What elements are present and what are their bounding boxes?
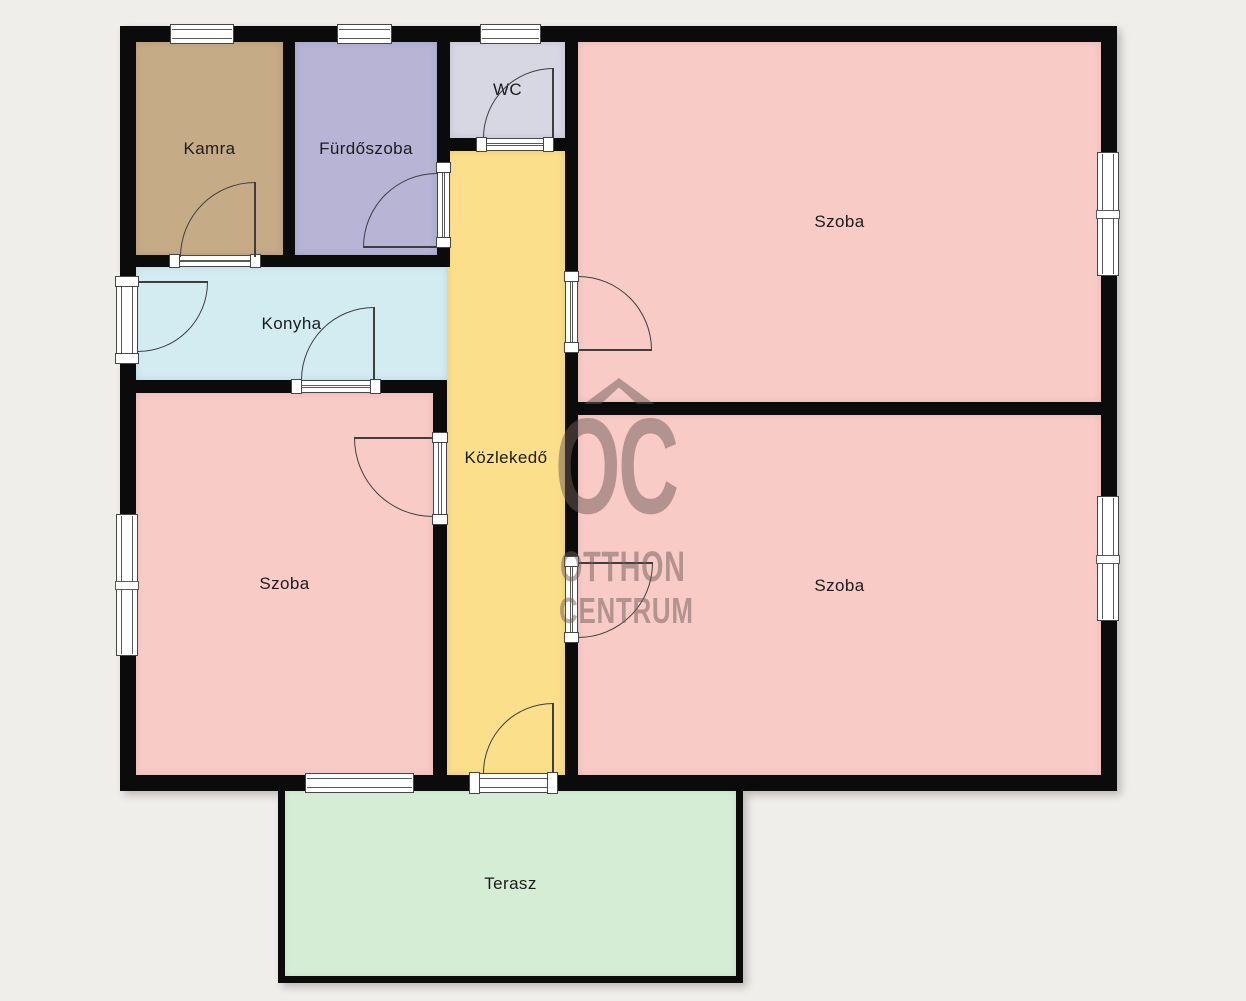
door-opening-szoba-br	[565, 557, 578, 642]
room-label-szoba-bottom-right: Szoba	[814, 576, 864, 596]
door-leaf-wc	[552, 68, 554, 138]
door-leaf-kamra	[254, 182, 256, 257]
wall-right-szoba-divider	[578, 402, 1117, 415]
door-leaf-szoba-bl	[354, 437, 433, 439]
door-opening-furdoszoba	[437, 163, 450, 247]
floor-plan: Kamra Fürdőszoba WC Szoba Konyha Közleke…	[0, 0, 1246, 1001]
wall-outer-top	[120, 26, 1117, 42]
door-opening-szoba-bl	[433, 433, 447, 524]
door-opening-konyha-entry	[116, 277, 138, 363]
window-kamra-top	[170, 24, 234, 44]
window-szoba-tr-right	[1097, 152, 1119, 276]
wall-outer-left	[120, 26, 136, 791]
wall-kamra-furdoszoba	[283, 42, 295, 255]
room-label-kozlekedo: Közlekedő	[465, 448, 548, 468]
wall-terasz-left	[278, 791, 285, 983]
room-szoba-bottom-right: Szoba	[578, 415, 1101, 775]
window-furdoszoba-top	[337, 24, 392, 44]
door-leaf-furdoszoba	[363, 246, 437, 248]
room-szoba-top-right: Szoba	[578, 42, 1101, 402]
wall-kozlekedo-right-rooms	[565, 42, 578, 775]
window-szoba-bl-terasz	[305, 773, 414, 793]
door-leaf-szoba-tr	[578, 349, 652, 351]
room-label-szoba-bottom-left: Szoba	[259, 574, 309, 594]
door-opening-terasz	[470, 773, 557, 793]
door-leaf-szoba-br	[578, 562, 653, 564]
room-label-konyha: Konyha	[261, 314, 321, 334]
door-opening-konyha-szoba	[292, 380, 380, 393]
door-opening-szoba-tr	[565, 272, 578, 352]
window-szoba-br-right	[1097, 496, 1119, 621]
wall-terasz-right	[736, 791, 743, 983]
window-szoba-bl-left	[116, 514, 138, 656]
room-label-kamra: Kamra	[183, 139, 235, 159]
door-leaf-terasz	[552, 703, 554, 773]
window-wc-top	[480, 24, 541, 44]
wall-terasz-bottom	[278, 976, 743, 983]
door-opening-wc	[477, 138, 553, 151]
room-label-terasz: Terasz	[484, 874, 536, 894]
wall-outer-bottom	[120, 775, 1117, 791]
door-leaf-konyha-entry	[138, 281, 208, 283]
room-label-furdoszoba: Fürdőszoba	[319, 139, 413, 159]
door-leaf-konyha-szoba	[373, 307, 375, 380]
room-label-szoba-top-right: Szoba	[814, 212, 864, 232]
room-terasz: Terasz	[285, 791, 736, 976]
room-kozlekedo: Közlekedő	[447, 151, 565, 775]
